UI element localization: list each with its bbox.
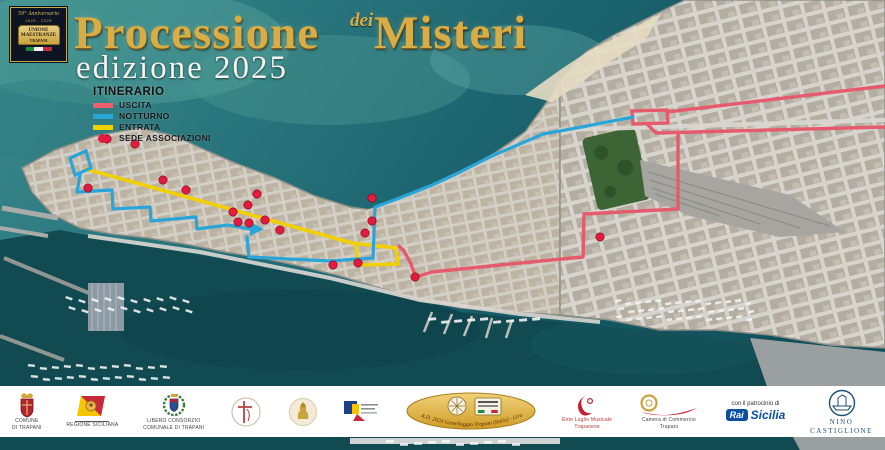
legend-item-uscita: USCITA [93,101,211,109]
legend-item-entrata: ENTRATA [93,123,211,131]
sponsor-gemellaggio: A.D. 2024 Gemellaggio Trapani (Italia) -… [405,392,537,432]
notturno-swatch [93,114,113,119]
legend-item-notturno: NOTTURNO [93,112,211,120]
market-building [88,283,124,331]
sponsor-nino-castiglione: NINO CASTIGLIONE [810,389,873,435]
madonna-medallion-icon [288,397,318,427]
rai-sicilia-label: Sicilia [751,408,786,422]
sponsor-libero-consorzio: LIBERO CONSORZIO COMUNALE DI TRAPANI [143,392,204,431]
luglio-musicale-icon [577,393,597,417]
sponsor-comune-di-trapani: COMUNE DI TRAPANI [12,392,42,431]
title-misteri: Misteri [374,6,527,60]
badge-years: 1925 - 2025 [25,18,52,23]
sede-dot-swatch [98,134,107,143]
nino-castiglione-ship-icon [827,389,857,417]
camera-commercio-icon [637,393,701,417]
italy-flag-stripe [26,47,52,51]
sponsor-camera-commercio: Camera di Commercio Trapani [637,393,701,430]
fondazione-logo-icon [343,399,381,425]
regione-siciliana-flag-icon [77,395,107,419]
sponsor-regione-siciliana: REGIONE SICILIANA [66,395,118,429]
title-dei: dei [350,10,373,32]
sponsor-diocesi-trapani [229,396,263,428]
sponsor-madonna-di-trapani [288,397,318,427]
sponsor-band: COMUNE DI TRAPANI REGIONE SICILIANA LIBE… [0,386,885,437]
badge-plaque: UNIONE MAESTRANZE TRAPANI [18,25,60,45]
legend: ITINERARIO USCITA NOTTURNO ENTRATA SEDE … [93,86,211,142]
sponsor-fondazione [343,399,381,425]
sponsor-rai-sicilia: con il patrocinio di Rai Sicilia [726,401,786,422]
edition-label: edizione 2025 [76,50,288,87]
legend-title: ITINERARIO [93,86,211,98]
uscita-swatch [93,103,113,108]
procession-map-poster: 59° Anniversario 1925 - 2025 UNIONE MAES… [0,0,885,450]
legend-item-sede-associazioni: SEDE ASSOCIAZIONI [93,134,211,142]
unione-maestranze-badge: 59° Anniversario 1925 - 2025 UNIONE MAES… [10,7,67,62]
libero-consorzio-crest-icon [162,392,186,418]
entrata-swatch [93,125,113,130]
patronage-label: con il patrocinio di [731,401,779,407]
sponsor-luglio-musicale: Ente Luglio Musicale Trapanese [562,393,612,430]
rai-logo: Rai [726,409,748,421]
gemellaggio-oval-icon: A.D. 2024 Gemellaggio Trapani (Italia) -… [405,392,537,432]
diocesi-cross-icon [229,396,263,428]
badge-anniversary: 59° Anniversario [18,11,59,17]
comune-trapani-crest-icon [16,392,38,418]
